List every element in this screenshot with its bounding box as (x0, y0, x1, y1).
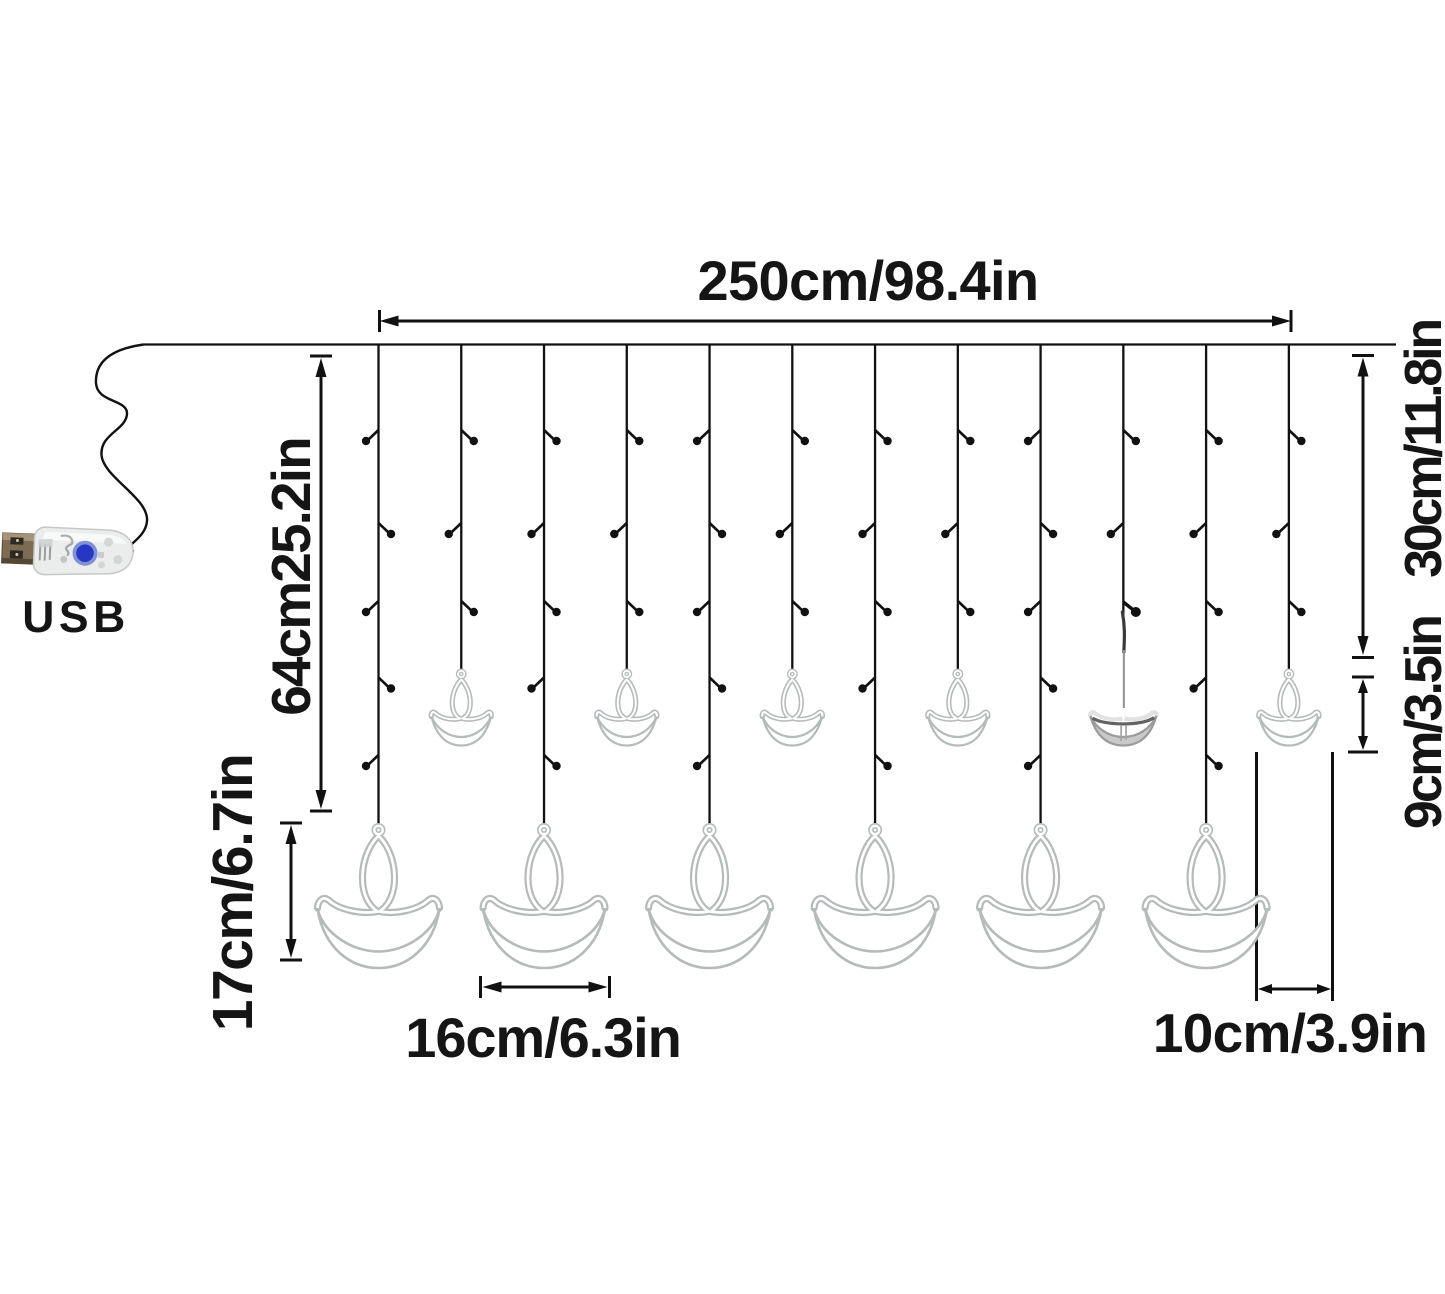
svg-text:16cm/6.3in: 16cm/6.3in (405, 1006, 680, 1069)
svg-text:17cm/6.7in: 17cm/6.7in (201, 755, 265, 1032)
svg-text:USB: USB (22, 593, 129, 642)
svg-text:64cm25.2in: 64cm25.2in (260, 438, 322, 716)
svg-text:250cm/98.4in: 250cm/98.4in (698, 249, 1039, 312)
svg-text:10cm/3.9in: 10cm/3.9in (1153, 1002, 1427, 1064)
svg-text:30cm/11.8in: 30cm/11.8in (1395, 321, 1445, 578)
svg-text:9cm/3.5in: 9cm/3.5in (1395, 617, 1445, 829)
